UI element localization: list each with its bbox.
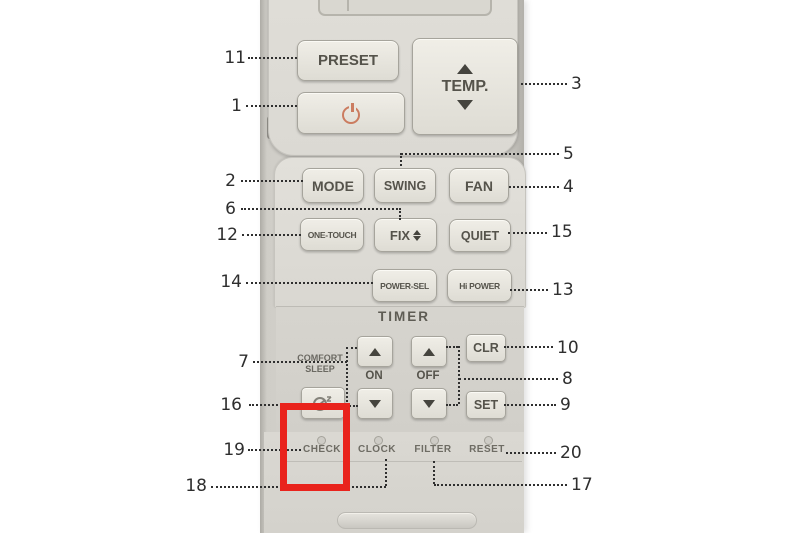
set-button[interactable]: SET <box>466 391 506 419</box>
callout-line-4 <box>509 186 559 188</box>
slide-cover-handle <box>337 512 477 529</box>
callout-line-7 <box>253 361 347 363</box>
annotated-remote-figure: PRESET TEMP. MODE SWING FAN ONE-TOUCH FI… <box>0 0 800 533</box>
timer-on-up-button[interactable] <box>357 336 393 367</box>
temp-down-icon <box>457 100 473 110</box>
up-arrow-icon <box>423 348 435 356</box>
one-touch-button[interactable]: ONE-TOUCH <box>300 218 364 251</box>
callout-line-20 <box>506 452 556 454</box>
callout-line-8s1 <box>446 346 458 348</box>
callout-line-15 <box>508 232 547 234</box>
temp-button[interactable]: TEMP. <box>412 38 518 135</box>
power-sel-label: POWER-SEL <box>380 281 429 291</box>
callout-line-18v <box>385 459 387 486</box>
callout-line-5 <box>401 153 559 155</box>
timer-off-down-button[interactable] <box>411 388 447 419</box>
callout-line-17 <box>434 484 567 486</box>
callout-line-11 <box>248 57 297 59</box>
callout-line-6 <box>241 208 401 210</box>
mode-button[interactable]: MODE <box>302 168 364 203</box>
fix-label: FIX <box>390 228 410 243</box>
clock-label: CLOCK <box>354 444 400 455</box>
temp-label: TEMP. <box>442 78 489 96</box>
lcd-divider <box>347 0 349 11</box>
swing-label: SWING <box>384 179 426 193</box>
callout-line-17v <box>433 461 435 484</box>
set-label: SET <box>474 398 498 412</box>
timer-off-up-button[interactable] <box>411 336 447 367</box>
fan-button[interactable]: FAN <box>449 168 509 203</box>
callout-16: 16 <box>214 395 242 415</box>
one-touch-label: ONE-TOUCH <box>308 230 357 240</box>
mode-label: MODE <box>312 178 354 194</box>
reset-label: RESET <box>464 444 510 455</box>
callout-17: 17 <box>571 475 599 495</box>
hi-power-button[interactable]: Hi POWER <box>447 269 512 302</box>
timer-off-label: OFF <box>411 370 445 382</box>
down-arrow-icon <box>369 400 381 408</box>
callout-line-8 <box>459 378 558 380</box>
clr-label: CLR <box>473 341 499 355</box>
callout-line-13 <box>510 289 548 291</box>
callout-line-8v <box>458 346 460 404</box>
temp-up-icon <box>457 64 473 74</box>
callout-14: 14 <box>214 272 242 292</box>
callout-12: 12 <box>210 225 238 245</box>
callout-line-7s1 <box>346 347 357 349</box>
callout-11: 11 <box>218 48 246 68</box>
down-arrow-icon <box>423 400 435 408</box>
callout-6: 6 <box>208 199 236 219</box>
quiet-label: QUIET <box>461 229 499 243</box>
callout-line-5v <box>400 153 402 166</box>
callout-9: 9 <box>560 395 588 415</box>
preset-button[interactable]: PRESET <box>297 40 399 81</box>
callout-1: 1 <box>214 96 242 116</box>
callout-10: 10 <box>557 338 585 358</box>
timer-on-down-button[interactable] <box>357 388 393 419</box>
timer-on-label: ON <box>357 370 391 382</box>
timer-heading: TIMER <box>371 309 437 324</box>
fix-button[interactable]: FIX <box>374 218 437 252</box>
callout-3: 3 <box>571 74 599 94</box>
callout-line-12 <box>242 234 301 236</box>
up-arrow-icon <box>369 348 381 356</box>
comfort-sleep-label: COMFORT SLEEP <box>292 353 348 375</box>
callout-line-9 <box>504 404 556 406</box>
callout-line-10 <box>504 346 553 348</box>
callout-line-7v <box>346 347 348 406</box>
callout-5: 5 <box>563 144 591 164</box>
callout-line-6v <box>399 208 401 220</box>
callout-2: 2 <box>208 171 236 191</box>
power-button[interactable] <box>297 92 405 134</box>
callout-18: 18 <box>179 476 207 496</box>
callout-line-3 <box>521 83 567 85</box>
callout-15: 15 <box>551 222 579 242</box>
preset-label: PRESET <box>318 52 378 69</box>
swing-button[interactable]: SWING <box>374 168 436 203</box>
check-highlight-rectangle <box>280 403 350 491</box>
hi-power-label: Hi POWER <box>459 281 500 291</box>
callout-19: 19 <box>217 440 245 460</box>
callout-line-1 <box>246 105 297 107</box>
callout-line-14 <box>246 282 373 284</box>
callout-4: 4 <box>563 177 591 197</box>
callout-7: 7 <box>221 352 249 372</box>
callout-20: 20 <box>560 443 588 463</box>
callout-13: 13 <box>552 280 580 300</box>
filter-label: FILTER <box>410 444 456 455</box>
callout-line-8s2 <box>446 404 458 406</box>
power-icon <box>342 104 360 122</box>
fix-updown-icon <box>413 230 421 241</box>
callout-line-2 <box>241 180 303 182</box>
clr-button[interactable]: CLR <box>466 334 506 362</box>
lcd-display-window <box>318 0 492 16</box>
power-sel-button[interactable]: POWER-SEL <box>372 269 437 302</box>
quiet-button[interactable]: QUIET <box>449 219 511 252</box>
fan-label: FAN <box>465 178 493 194</box>
callout-8: 8 <box>562 369 590 389</box>
